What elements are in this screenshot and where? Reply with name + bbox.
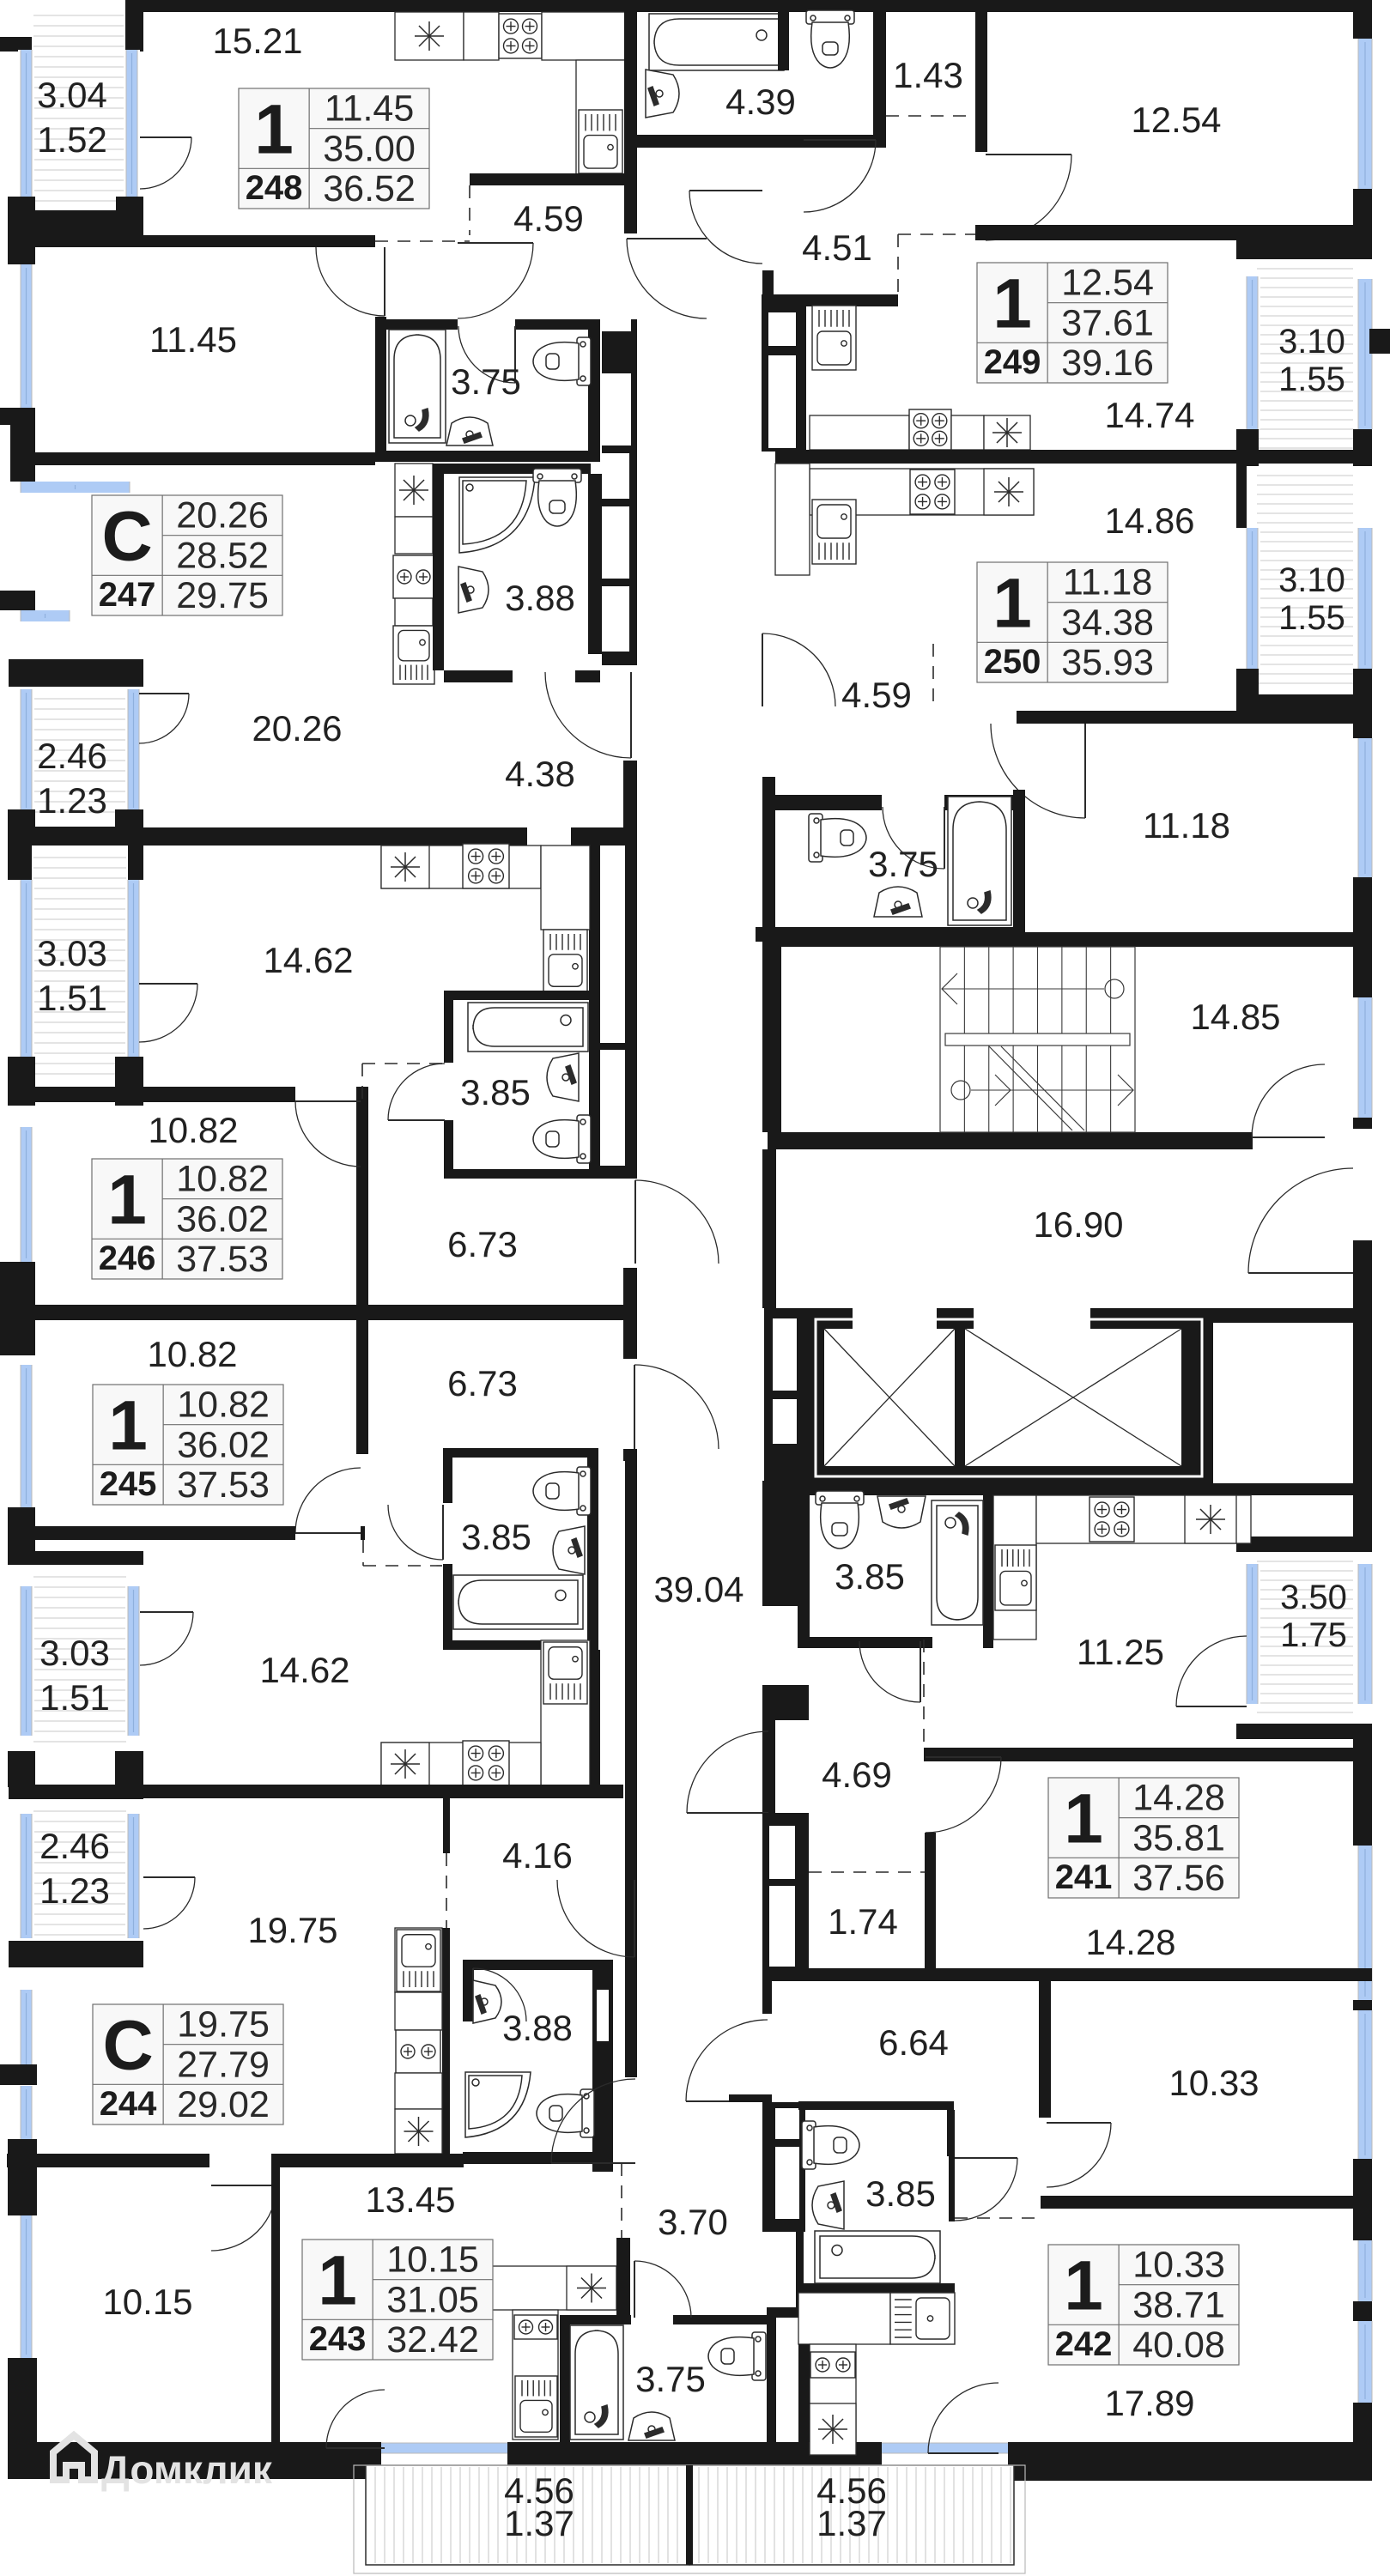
svg-text:38.71: 38.71 [1132,2284,1225,2325]
svg-text:28.52: 28.52 [176,535,269,576]
svg-text:6.73: 6.73 [447,1224,518,1264]
svg-text:16.90: 16.90 [1033,1204,1123,1245]
svg-text:20.26: 20.26 [252,708,342,749]
svg-text:10.82: 10.82 [147,1334,237,1374]
svg-text:14.86: 14.86 [1104,500,1194,541]
svg-text:3.85: 3.85 [460,1072,531,1112]
svg-text:246: 246 [99,1240,156,1277]
svg-text:1.23: 1.23 [39,1870,110,1911]
svg-text:1.52: 1.52 [37,119,107,160]
svg-text:1.74: 1.74 [828,1901,898,1942]
svg-text:247: 247 [99,576,156,614]
svg-text:249: 249 [984,343,1041,381]
svg-text:10.82: 10.82 [177,1385,270,1426]
svg-text:14.28: 14.28 [1132,1778,1225,1819]
svg-text:1.75: 1.75 [1280,1616,1347,1654]
svg-text:39.04: 39.04 [653,1569,744,1609]
svg-text:4.16: 4.16 [502,1835,573,1876]
svg-text:11.18: 11.18 [1063,562,1152,603]
svg-text:2.46: 2.46 [37,736,107,776]
svg-text:14.28: 14.28 [1085,1922,1175,1962]
svg-text:3.75: 3.75 [635,2359,706,2399]
svg-text:242: 242 [1055,2325,1113,2363]
svg-text:1: 1 [318,2241,357,2319]
svg-text:11.45: 11.45 [325,88,414,130]
svg-text:4.59: 4.59 [513,198,584,239]
svg-text:3.75: 3.75 [868,844,938,884]
svg-text:32.42: 32.42 [386,2319,479,2361]
svg-text:29.75: 29.75 [176,575,269,616]
svg-text:12.54: 12.54 [1131,100,1221,140]
svg-text:19.75: 19.75 [247,1910,337,1950]
svg-text:1: 1 [254,90,294,168]
svg-text:15.21: 15.21 [212,21,302,61]
svg-text:1.55: 1.55 [1278,599,1345,637]
svg-text:3.10: 3.10 [1278,561,1345,599]
svg-text:10.33: 10.33 [1168,2063,1259,2103]
svg-text:13.45: 13.45 [365,2179,455,2220]
svg-text:3.04: 3.04 [37,75,107,115]
svg-text:1: 1 [1064,1779,1103,1858]
svg-text:1: 1 [107,1161,147,1239]
svg-text:245: 245 [100,1465,157,1503]
svg-text:1: 1 [108,1386,148,1464]
svg-text:10.33: 10.33 [1132,2245,1225,2286]
svg-text:10.15: 10.15 [386,2240,479,2281]
svg-text:40.08: 40.08 [1132,2324,1225,2366]
svg-text:4.69: 4.69 [822,1755,892,1795]
svg-text:27.79: 27.79 [177,2044,270,2085]
svg-text:244: 244 [100,2085,157,2123]
svg-text:3.03: 3.03 [37,933,107,973]
svg-text:35.00: 35.00 [323,128,416,169]
svg-text:243: 243 [309,2320,367,2358]
svg-text:10.82: 10.82 [148,1110,238,1150]
svg-text:39.16: 39.16 [1061,342,1154,384]
svg-text:1.37: 1.37 [504,2503,574,2543]
svg-text:14.62: 14.62 [259,1650,349,1690]
svg-text:31.05: 31.05 [386,2279,479,2320]
svg-text:3.50: 3.50 [1280,1579,1347,1616]
svg-text:10.15: 10.15 [102,2282,192,2322]
svg-text:1.55: 1.55 [1278,361,1345,398]
svg-text:1: 1 [992,564,1032,642]
svg-text:11.25: 11.25 [1077,1632,1164,1672]
svg-text:2.46: 2.46 [39,1826,110,1866]
svg-text:34.38: 34.38 [1061,602,1154,643]
svg-text:36.02: 36.02 [176,1198,269,1240]
svg-text:1: 1 [992,264,1032,342]
svg-text:36.02: 36.02 [177,1424,270,1465]
svg-text:Домклик: Домклик [101,2447,273,2492]
svg-text:35.93: 35.93 [1061,642,1154,683]
svg-text:11.18: 11.18 [1143,805,1230,846]
svg-text:4.59: 4.59 [841,675,912,715]
svg-text:241: 241 [1055,1858,1113,1896]
svg-text:3.85: 3.85 [865,2173,936,2214]
svg-text:3.88: 3.88 [505,578,575,618]
svg-text:С: С [102,2006,153,2084]
svg-text:37.56: 37.56 [1132,1858,1225,1899]
svg-text:10.82: 10.82 [176,1159,269,1200]
svg-text:3.88: 3.88 [502,2008,573,2048]
svg-text:37.53: 37.53 [176,1239,269,1280]
svg-text:3.03: 3.03 [39,1633,110,1673]
svg-text:14.85: 14.85 [1190,997,1280,1037]
svg-text:3.70: 3.70 [658,2202,728,2242]
svg-text:19.75: 19.75 [177,2004,270,2046]
svg-text:С: С [101,497,152,575]
svg-text:3.85: 3.85 [461,1517,531,1557]
svg-text:6.64: 6.64 [878,2022,949,2063]
svg-text:36.52: 36.52 [323,168,416,209]
svg-text:14.74: 14.74 [1104,395,1194,435]
svg-text:11.45: 11.45 [149,319,237,360]
svg-text:12.54: 12.54 [1061,263,1154,304]
svg-text:248: 248 [246,169,303,207]
svg-text:1.51: 1.51 [39,1677,110,1718]
svg-text:20.26: 20.26 [176,495,269,536]
svg-text:1.43: 1.43 [893,55,963,95]
svg-text:3.85: 3.85 [835,1556,905,1597]
svg-text:1: 1 [1064,2246,1103,2324]
svg-text:29.02: 29.02 [177,2084,270,2125]
svg-text:1.37: 1.37 [816,2503,887,2543]
svg-text:1.51: 1.51 [37,978,107,1018]
svg-text:6.73: 6.73 [447,1363,518,1403]
svg-text:4.39: 4.39 [725,82,796,122]
svg-text:4.38: 4.38 [505,754,575,794]
svg-text:1.23: 1.23 [37,780,107,821]
svg-text:3.75: 3.75 [451,361,521,402]
svg-text:250: 250 [984,643,1041,681]
svg-text:4.51: 4.51 [802,227,872,268]
svg-text:37.61: 37.61 [1061,302,1154,343]
svg-text:35.81: 35.81 [1132,1817,1225,1858]
svg-text:37.53: 37.53 [177,1464,270,1506]
svg-text:17.89: 17.89 [1104,2383,1194,2423]
svg-text:3.10: 3.10 [1278,323,1345,361]
svg-text:14.62: 14.62 [263,940,353,980]
